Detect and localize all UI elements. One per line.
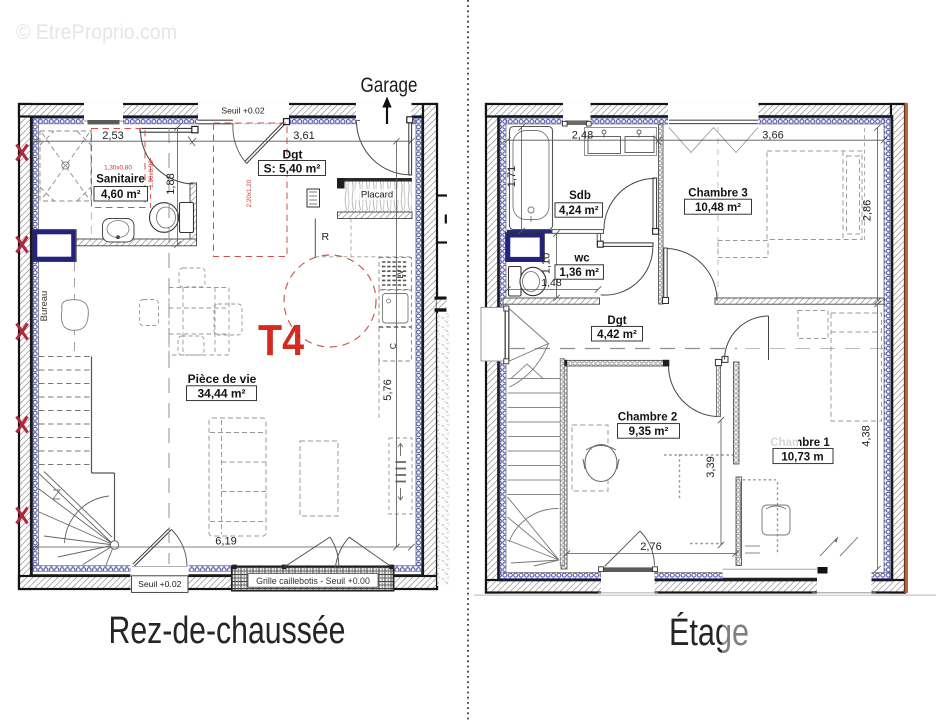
svg-text:1,71: 1,71 (506, 166, 518, 187)
svg-text:Bureau: Bureau (39, 291, 50, 322)
svg-text:R: R (322, 231, 330, 243)
svg-text:wc: wc (573, 253, 590, 265)
svg-text:Chambre 3: Chambre 3 (688, 188, 747, 200)
svg-text:4,42 m²: 4,42 m² (597, 329, 637, 341)
svg-text:4,38: 4,38 (861, 425, 873, 446)
svg-text:5,76: 5,76 (382, 379, 394, 400)
svg-text:3,39: 3,39 (705, 456, 717, 477)
svg-text:9,35 m²: 9,35 m² (629, 426, 669, 438)
svg-text:10,73 m: 10,73 m (781, 451, 823, 463)
svg-text:Seuil +0.02: Seuil +0.02 (221, 106, 264, 116)
svg-text:S: 5,40 m²: S: 5,40 m² (264, 162, 321, 176)
svg-text:3,66: 3,66 (762, 130, 783, 142)
svg-text:10,48 m²: 10,48 m² (695, 202, 741, 214)
svg-text:1,30x0,80: 1,30x0,80 (104, 165, 132, 172)
svg-text:Placard: Placard (361, 190, 393, 201)
svg-text:2,53: 2,53 (102, 130, 123, 142)
svg-text:Dgt: Dgt (283, 148, 303, 162)
svg-text:Chambre 2: Chambre 2 (618, 412, 677, 424)
svg-text:1,10: 1,10 (541, 253, 553, 274)
svg-text:4,24 m²: 4,24 m² (559, 205, 599, 217)
svg-text:LV: LV (396, 269, 405, 279)
svg-text:2,20x1,20: 2,20x1,20 (246, 179, 253, 207)
svg-text:© EtreProprio.com: © EtreProprio.com (16, 21, 177, 44)
svg-text:Sdb: Sdb (569, 190, 591, 202)
svg-text:2,48: 2,48 (572, 130, 593, 142)
svg-text:Grille caillebotis - Seuil +0.: Grille caillebotis - Seuil +0.00 (256, 576, 370, 586)
svg-text:3,61: 3,61 (293, 130, 314, 142)
svg-text:2,86: 2,86 (862, 200, 874, 221)
svg-text:Dgt: Dgt (607, 315, 626, 327)
svg-text:Pièce de vie: Pièce de vie (188, 372, 257, 386)
svg-text:Garage: Garage (361, 74, 418, 97)
svg-text:1,90x0,90: 1,90x0,90 (148, 160, 155, 188)
svg-text:6,19: 6,19 (215, 536, 236, 548)
svg-text:Rez-de-chaussée: Rez-de-chaussée (109, 610, 346, 652)
svg-text:1,36 m²: 1,36 m² (559, 267, 599, 279)
svg-text:Sanitaire: Sanitaire (96, 174, 145, 186)
svg-text:4,60 m²: 4,60 m² (101, 189, 141, 201)
svg-text:T4: T4 (258, 316, 304, 365)
svg-text:34,44 m²: 34,44 m² (197, 387, 245, 401)
svg-text:Seuil +0.02: Seuil +0.02 (138, 579, 181, 589)
svg-text:1,88: 1,88 (165, 173, 177, 194)
